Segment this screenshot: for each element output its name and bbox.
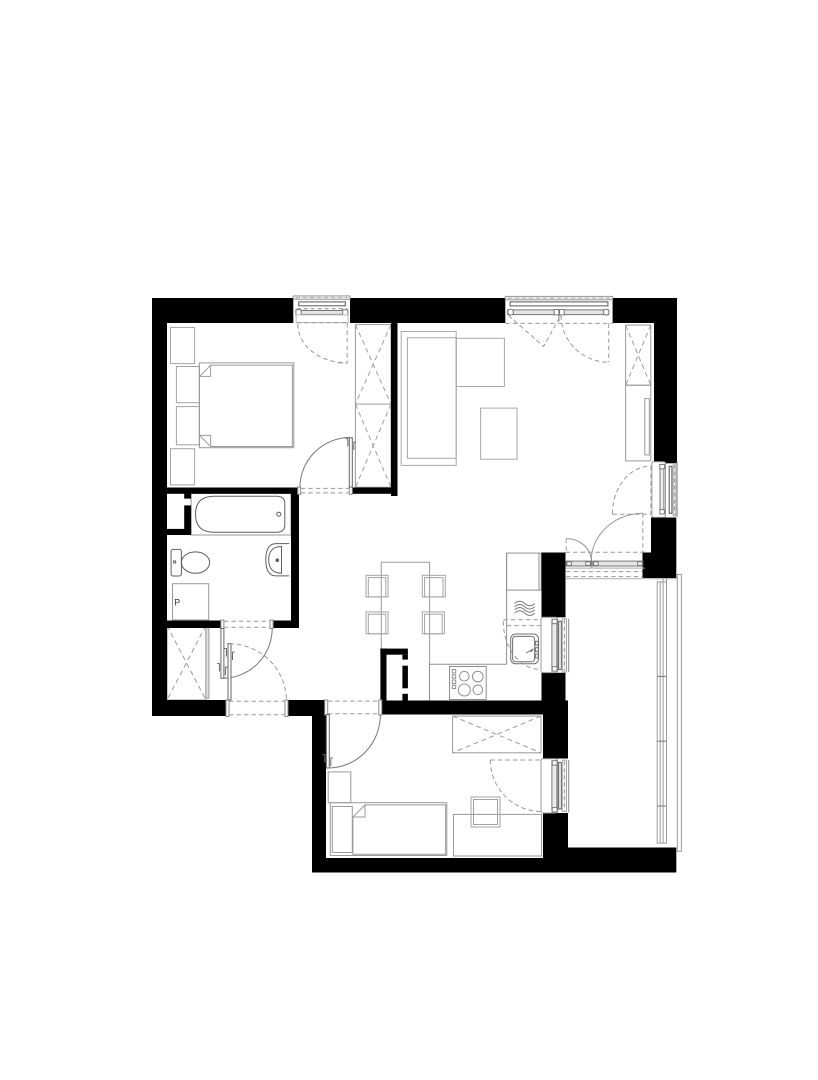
svg-text:P: P: [174, 597, 180, 607]
